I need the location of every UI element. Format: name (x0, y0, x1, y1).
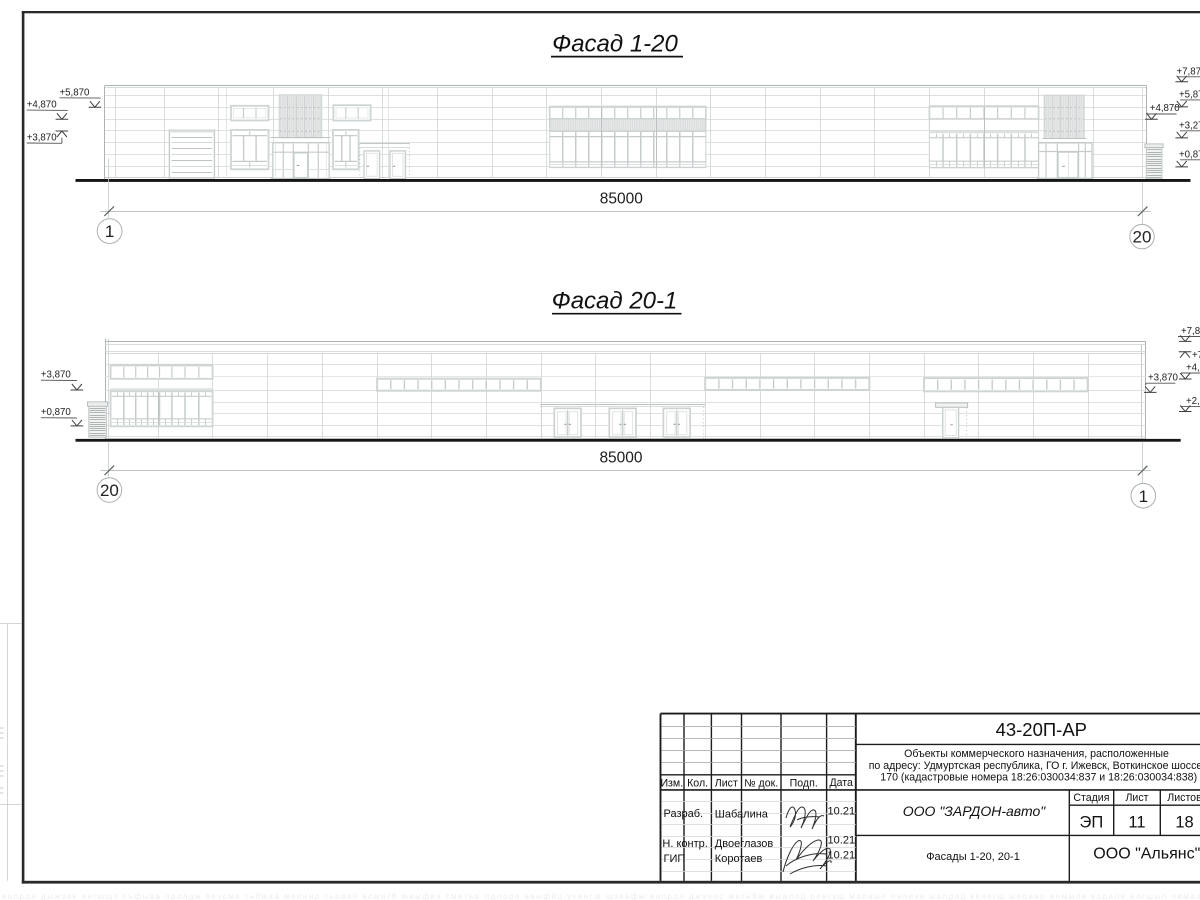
svg-text:Н. контр.: Н. контр. (662, 838, 707, 850)
svg-text:1: 1 (105, 222, 114, 241)
svg-text:11: 11 (1128, 814, 1145, 832)
svg-text:+0,870: +0,870 (1179, 149, 1200, 160)
svg-text:+0,870: +0,870 (41, 407, 72, 418)
svg-text:10.21: 10.21 (828, 850, 856, 862)
svg-text:Разраб.: Разраб. (664, 808, 704, 820)
svg-text:+7,870: +7,870 (1177, 66, 1200, 77)
svg-text:ГИП: ГИП (664, 853, 686, 865)
svg-text:Кол.: Кол. (687, 778, 708, 790)
svg-text:вапрол дыжэвк енгшщз хъфыва пр: вапрол дыжэвк енгшщз хъфыва пролдж эячсм… (2, 892, 1200, 900)
svg-text:+4,870: +4,870 (27, 100, 58, 111)
svg-text:Стадия: Стадия (1073, 792, 1109, 804)
svg-text:43-20П-АР: 43-20П-АР (996, 719, 1087, 740)
svg-text:Объекты коммерческого назначен: Объекты коммерческого назначения, распол… (904, 748, 1169, 760)
svg-text:+5,870: +5,870 (1179, 89, 1200, 100)
svg-text:Двоеглазов: Двоеглазов (715, 838, 774, 850)
svg-text:№ док.: № док. (744, 778, 778, 790)
svg-text:+7,: +7, (1192, 350, 1200, 361)
svg-text:+3,870: +3,870 (41, 370, 72, 381)
svg-text:Фасад 20-1: Фасад 20-1 (552, 287, 678, 314)
svg-text:Коротаев: Коротаев (715, 853, 763, 865)
svg-text:+5,870: +5,870 (60, 87, 91, 98)
svg-text:1: 1 (1139, 487, 1148, 506)
svg-text:+4,8: +4,8 (1186, 362, 1200, 373)
svg-text:Фасад 1-20: Фасад 1-20 (552, 31, 678, 58)
svg-text:ООО "Альянс": ООО "Альянс" (1093, 845, 1200, 862)
svg-text:20: 20 (100, 481, 119, 500)
svg-text:Подп.: Подп. (790, 778, 818, 790)
svg-text:ЭП: ЭП (1080, 814, 1104, 832)
svg-text:по адресу: Удмуртская республи: по адресу: Удмуртская республика, ГО г. … (869, 760, 1200, 772)
svg-text:170 (кадастровые номера 18:26:: 170 (кадастровые номера 18:26:030034:837… (880, 772, 1197, 784)
svg-text:18: 18 (1175, 814, 1193, 832)
svg-text:Дата: Дата (829, 777, 853, 789)
svg-text:10.21: 10.21 (828, 835, 856, 847)
svg-text:Листов: Листов (1167, 792, 1200, 804)
svg-text:85000: 85000 (599, 450, 642, 467)
svg-text:+3,270: +3,270 (1179, 120, 1200, 131)
svg-text:+7,8: +7,8 (1181, 326, 1200, 337)
svg-text:10.21: 10.21 (828, 806, 856, 818)
svg-text:+3,870: +3,870 (27, 133, 58, 144)
svg-text:ООО "ЗАРДОН-авто": ООО "ЗАРДОН-авто" (903, 803, 1046, 819)
svg-text:+4,870: +4,870 (1150, 103, 1181, 114)
svg-text:Лист: Лист (715, 778, 738, 790)
svg-text:Лист: Лист (1125, 792, 1148, 804)
svg-text:20: 20 (1133, 228, 1152, 247)
svg-text:+2,1: +2,1 (1186, 396, 1200, 407)
svg-text:Изм.: Изм. (660, 778, 683, 790)
svg-text:+3,870: +3,870 (1148, 372, 1179, 383)
svg-text:85000: 85000 (600, 191, 643, 208)
svg-text:Шабалина: Шабалина (715, 808, 769, 820)
svg-text:Фасады 1-20, 20-1: Фасады 1-20, 20-1 (926, 851, 1020, 863)
